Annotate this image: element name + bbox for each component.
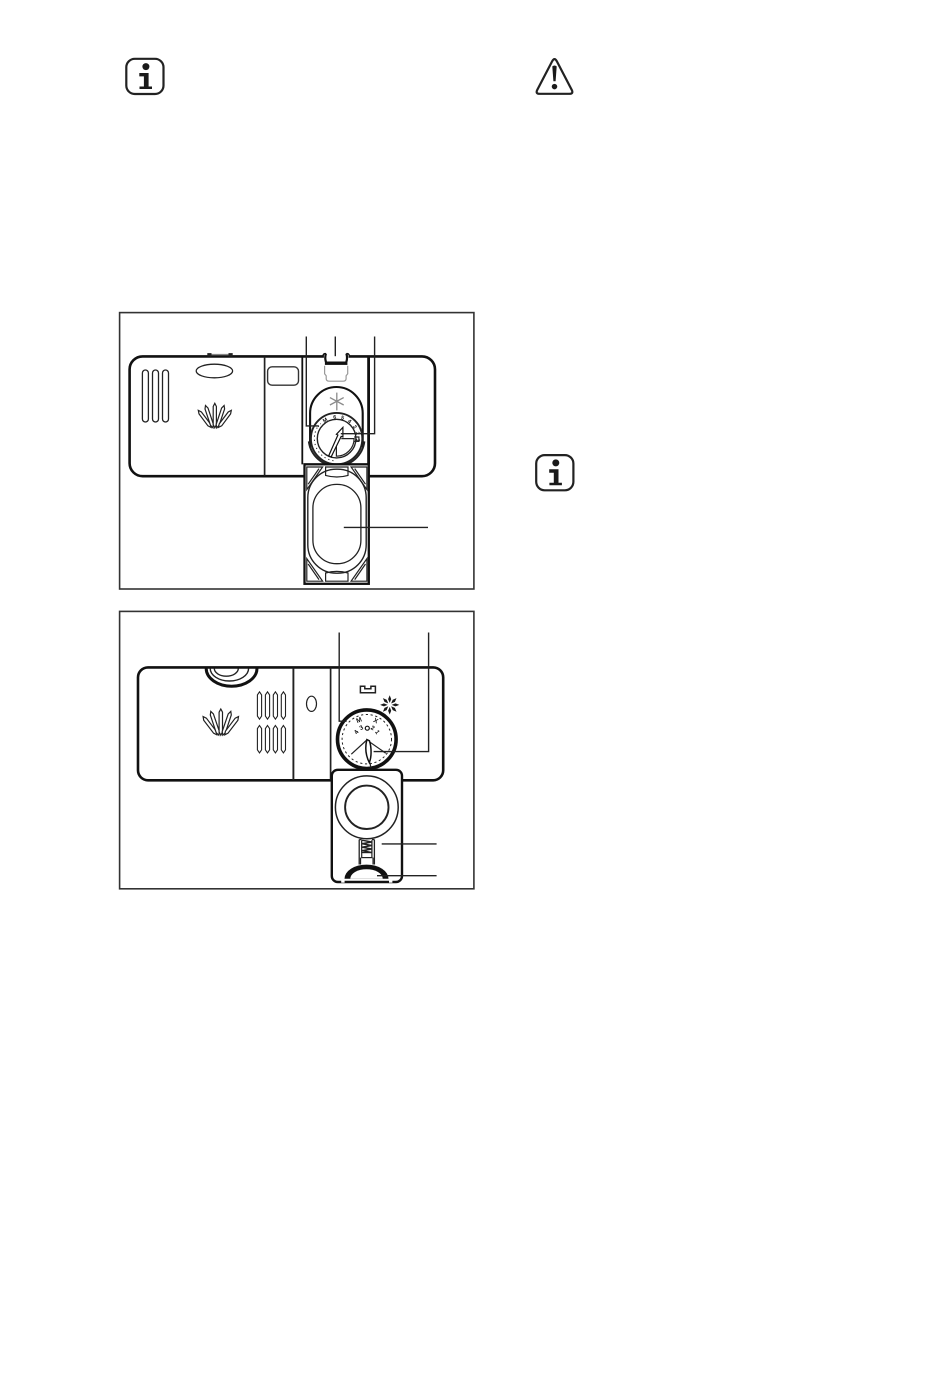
svg-text:6: 6 — [333, 415, 337, 421]
